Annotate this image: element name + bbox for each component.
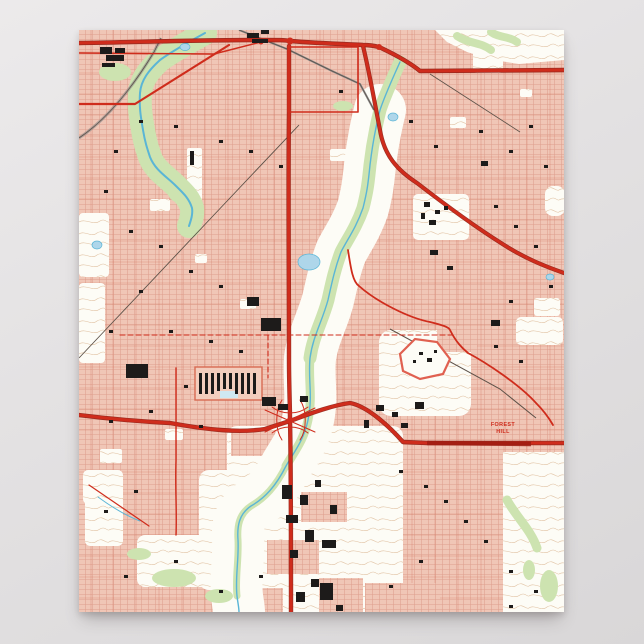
- map-poster: FOREST HILL: [79, 30, 564, 612]
- topographic-map: FOREST HILL: [79, 30, 564, 612]
- industrial-compound: [195, 367, 262, 400]
- map-label-forest-hill-line2: HILL: [496, 429, 510, 435]
- scene: FOREST HILL: [0, 0, 644, 644]
- map-label-forest-hill-line1: FOREST: [491, 422, 516, 428]
